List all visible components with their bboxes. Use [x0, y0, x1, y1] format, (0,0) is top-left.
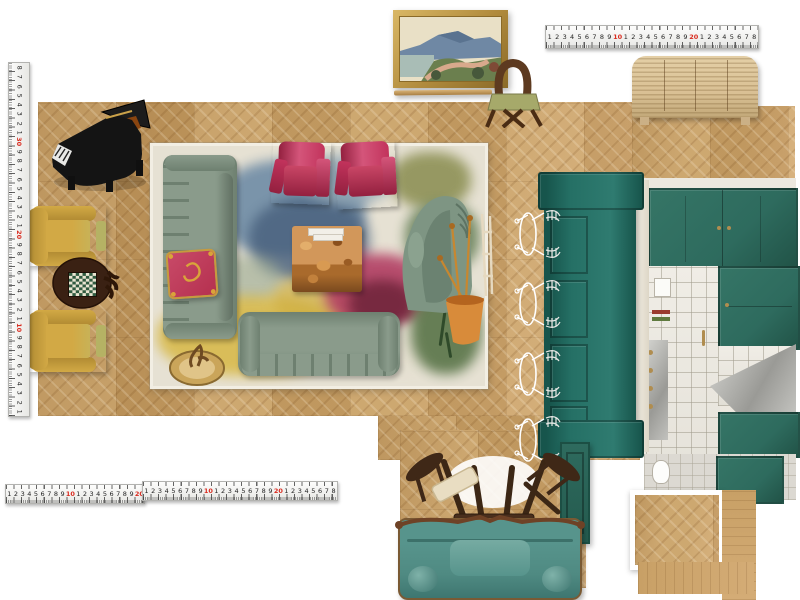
ruler-number: 6 [108, 491, 115, 498]
ruler-number: 10 [66, 491, 75, 498]
ruler-number: 3 [561, 34, 568, 41]
ruler-number: 20 [14, 230, 23, 239]
loop-back-dining-chair[interactable] [478, 58, 548, 128]
ruler-number: 3 [19, 491, 26, 498]
ruler-number: 2 [150, 488, 157, 495]
ruler-number: 1 [14, 224, 23, 228]
floor-sample-chevron[interactable] [630, 490, 724, 570]
brass-knob [717, 226, 721, 230]
ruler-number: 1 [14, 410, 23, 414]
ruler-number: 4 [721, 34, 728, 41]
ruler-number: 5 [14, 186, 23, 190]
ruler-number: 9 [14, 149, 23, 153]
ruler-number: 9 [267, 488, 274, 495]
moodboard-canvas: 8765432130987654321209876543211098765432… [0, 0, 800, 600]
ruler-number: 8 [14, 159, 23, 163]
ruler-number: 4 [14, 382, 23, 386]
ruler-number: 1 [698, 34, 705, 41]
ruler-number: 4 [14, 103, 23, 107]
ruler-number: 4 [568, 34, 575, 41]
ruler-vertical-left[interactable]: 8765432130987654321209876543211098765432… [8, 62, 30, 417]
ruler-number: 4 [303, 488, 310, 495]
ruler-number: 7 [667, 34, 674, 41]
ruler-number: 8 [750, 34, 757, 41]
ruler-number: 3 [88, 491, 95, 498]
ruler-number: 8 [674, 34, 681, 41]
ruler-number: 7 [591, 34, 598, 41]
games-table-checkerboard[interactable] [52, 256, 120, 312]
armchair-magenta-left[interactable] [271, 141, 331, 205]
book [313, 234, 343, 241]
ruler-number: 6 [317, 488, 324, 495]
checkerboard [68, 272, 97, 297]
ruler-number: 8 [14, 344, 23, 348]
ruler-number: 4 [95, 491, 102, 498]
ruler-number: 5 [102, 491, 109, 498]
kitchen-cabinet-right [718, 266, 800, 350]
ruler-number: 3 [14, 298, 23, 302]
ruler-number: 1 [622, 34, 629, 41]
ruler-number: 1 [14, 131, 23, 135]
ruler-bottom-segment-a[interactable]: 1234567891012345678920 [5, 484, 145, 504]
ruler-number: 5 [728, 34, 735, 41]
ruler-number: 6 [177, 488, 184, 495]
ruler-number: 8 [190, 488, 197, 495]
ruler-number: 2 [13, 491, 20, 498]
ruler-number: 1 [546, 34, 553, 41]
ruler-number: 2 [14, 400, 23, 404]
ruler-number: 5 [240, 488, 247, 495]
ruler-number: 1 [14, 317, 23, 321]
spice-shelf [652, 310, 670, 314]
ruler-number: 6 [14, 177, 23, 181]
teal-sofa-carved-trim[interactable] [398, 518, 582, 600]
ruler-number: 4 [163, 488, 170, 495]
ruler-number: 30 [14, 138, 23, 147]
ruler-number: 7 [184, 488, 191, 495]
tasseled-pillow[interactable] [165, 248, 218, 299]
ruler-number: 2 [290, 488, 297, 495]
ruler-number: 1 [6, 491, 13, 498]
ruler-number: 1 [283, 488, 290, 495]
ruler-number: 3 [713, 34, 720, 41]
ruler-number: 10 [613, 34, 622, 41]
ruler-number: 10 [204, 488, 213, 495]
ruler-number: 9 [128, 491, 135, 498]
ruler-number: 8 [14, 66, 23, 70]
ruler-number: 6 [659, 34, 666, 41]
ruler-number: 9 [197, 488, 204, 495]
ruler-number: 2 [706, 34, 713, 41]
ruler-number: 9 [682, 34, 689, 41]
ruler-number: 4 [26, 491, 33, 498]
ruler-number: 1 [213, 488, 220, 495]
ruler-number: 2 [14, 214, 23, 218]
ruler-number: 5 [33, 491, 40, 498]
ruler-number: 6 [14, 363, 23, 367]
ruler-number: 7 [46, 491, 53, 498]
ruler-number: 8 [598, 34, 605, 41]
floor-sample-plank-horizontal[interactable] [638, 562, 754, 594]
ruler-number: 9 [59, 491, 66, 498]
brass-handle [702, 330, 705, 346]
ruler-number: 20 [689, 34, 698, 41]
ruler-number: 8 [330, 488, 337, 495]
ruler-number: 3 [637, 34, 644, 41]
ruler-number: 5 [576, 34, 583, 41]
switch-plate [654, 278, 671, 297]
ruler-number: 7 [14, 75, 23, 79]
slatted-sideboard[interactable] [632, 56, 758, 118]
kitchen-cabinet-lower [718, 412, 800, 458]
ruler-number: 3 [157, 488, 164, 495]
ruler-number: 3 [14, 205, 23, 209]
ruler-number: 6 [247, 488, 254, 495]
ruler-number: 6 [39, 491, 46, 498]
ruler-number: 6 [14, 84, 23, 88]
sofa-sage-horizontal[interactable] [238, 312, 400, 376]
ruler-number: 10 [14, 323, 23, 332]
ruler-number: 6 [583, 34, 590, 41]
brass-knob [727, 226, 731, 230]
ruler-number: 7 [14, 168, 23, 172]
ruler-number: 7 [14, 261, 23, 265]
carved-wood-trim [394, 512, 586, 530]
wire-bar-stool[interactable] [512, 344, 568, 404]
ruler-number: 2 [14, 121, 23, 125]
brass-side-table-with-figurine[interactable] [168, 344, 226, 388]
potted-plant-terracotta[interactable] [430, 196, 500, 346]
ruler-number: 3 [296, 488, 303, 495]
ruler-number: 3 [226, 488, 233, 495]
ruler-number: 7 [254, 488, 261, 495]
white-fixture [652, 460, 670, 484]
ruler-number: 4 [644, 34, 651, 41]
ruler-number: 5 [14, 93, 23, 97]
ruler-number: 8 [260, 488, 267, 495]
ruler-number: 5 [652, 34, 659, 41]
ruler-number: 9 [606, 34, 613, 41]
ruler-number: 1 [143, 488, 150, 495]
wire-bar-stool[interactable] [512, 274, 568, 334]
ruler-number: 7 [323, 488, 330, 495]
ruler-bottom-segment-b[interactable]: 123456789101234567892012345678 [142, 481, 338, 501]
ruler-number: 1 [75, 491, 82, 498]
ruler-number: 7 [14, 354, 23, 358]
ruler-number: 3 [14, 112, 23, 116]
ruler-number: 2 [553, 34, 560, 41]
kitchen-upper-cabinets [648, 188, 798, 270]
ruler-number: 4 [14, 289, 23, 293]
ruler-number: 8 [53, 491, 60, 498]
ruler-number: 20 [274, 488, 283, 495]
ruler-number: 7 [743, 34, 750, 41]
ruler-number: 8 [14, 252, 23, 256]
sofa-sage-vertical[interactable] [163, 155, 237, 339]
ruler-number: 5 [310, 488, 317, 495]
kitchen-elevation-photo[interactable] [644, 178, 796, 500]
ruler-number: 4 [14, 196, 23, 200]
ruler-horizontal-top[interactable]: 123456789101234567892012345678 [545, 25, 759, 49]
ruler-number: 4 [233, 488, 240, 495]
ruler-number: 2 [82, 491, 89, 498]
wire-bar-stool[interactable] [512, 204, 568, 264]
grand-piano[interactable] [44, 98, 154, 194]
ruler-number: 2 [14, 307, 23, 311]
armchair-magenta-right[interactable] [334, 140, 397, 209]
armchair-yellow-bottom[interactable] [28, 310, 106, 372]
ruler-number: 9 [14, 242, 23, 246]
ruler-number: 2 [630, 34, 637, 41]
island-counter-edge [634, 180, 649, 452]
ruler-number: 5 [170, 488, 177, 495]
ruler-number: 6 [14, 270, 23, 274]
ruler-number: 7 [115, 491, 122, 498]
spice-shelf [652, 317, 670, 321]
ruler-number: 6 [736, 34, 743, 41]
ruler-number: 5 [14, 372, 23, 376]
ruler-number: 3 [14, 391, 23, 395]
ruler-number: 5 [14, 279, 23, 283]
ruler-number: 8 [122, 491, 129, 498]
ruler-number: 2 [220, 488, 227, 495]
burl-coffee-table[interactable] [292, 226, 362, 292]
ruler-number: 9 [14, 335, 23, 339]
